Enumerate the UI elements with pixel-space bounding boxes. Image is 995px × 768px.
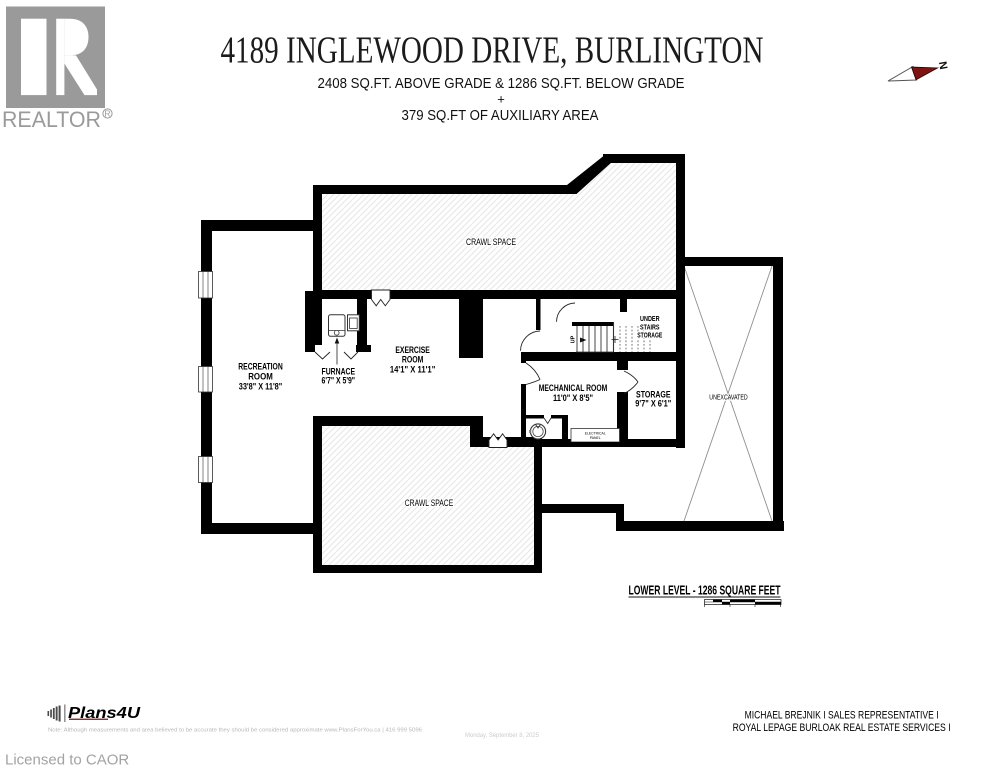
svg-text:PANEL: PANEL <box>590 436 601 440</box>
svg-text:33'8" X 11'8": 33'8" X 11'8" <box>239 381 283 391</box>
svg-text:Licensed to CAOR: Licensed to CAOR <box>5 752 129 768</box>
svg-text:MICHAEL BREJNIK I SALES REPRES: MICHAEL BREJNIK I SALES REPRESENTATIVE I <box>745 709 939 721</box>
svg-text:Monday, September 8, 2025: Monday, September 8, 2025 <box>465 733 540 739</box>
svg-text:4189 INGLEWOOD DRIVE, BURLINGT: 4189 INGLEWOOD DRIVE, BURLINGTON <box>221 30 764 72</box>
svg-text:UNEXCAVATED: UNEXCAVATED <box>709 392 748 401</box>
svg-text:Note: Although measurements an: Note: Although measurements and area bel… <box>48 728 422 734</box>
svg-text:ROYAL LEPAGE BURLOAK REAL ESTA: ROYAL LEPAGE BURLOAK REAL ESTATE SERVICE… <box>733 722 951 734</box>
svg-text:14'1" X 11'1": 14'1" X 11'1" <box>390 364 436 374</box>
svg-text:11'0" X 8'5": 11'0" X 8'5" <box>553 393 593 403</box>
svg-text:LOWER LEVEL - 1286 SQUARE FEET: LOWER LEVEL - 1286 SQUARE FEET <box>629 583 781 598</box>
svg-text:2408 SQ.FT. ABOVE GRADE & 1286: 2408 SQ.FT. ABOVE GRADE & 1286 SQ.FT. BE… <box>318 76 685 92</box>
svg-text:9'7" X 6'1": 9'7" X 6'1" <box>635 399 671 409</box>
svg-text:ELECTRICAL: ELECTRICAL <box>585 432 606 436</box>
svg-text:ROOM: ROOM <box>248 371 273 381</box>
svg-text:+: + <box>497 92 505 107</box>
svg-text:379 SQ.FT OF AUXILIARY AREA: 379 SQ.FT OF AUXILIARY AREA <box>402 108 599 124</box>
svg-text:ROOM: ROOM <box>402 354 424 364</box>
svg-text:6'7" X 5'9": 6'7" X 5'9" <box>322 375 356 385</box>
svg-text:CRAWL SPACE: CRAWL SPACE <box>466 237 516 247</box>
svg-text:RECREATION: RECREATION <box>238 361 283 371</box>
svg-text:REALTOR: REALTOR <box>2 107 101 132</box>
svg-text:CRAWL SPACE: CRAWL SPACE <box>405 498 454 508</box>
svg-text:STORAGE: STORAGE <box>637 332 662 339</box>
svg-text:STAIRS: STAIRS <box>640 324 660 331</box>
svg-text:UP: UP <box>571 335 577 343</box>
svg-text:UNDER: UNDER <box>640 316 660 323</box>
svg-text:R: R <box>104 109 110 119</box>
svg-text:MECHANICAL ROOM: MECHANICAL ROOM <box>539 383 608 393</box>
